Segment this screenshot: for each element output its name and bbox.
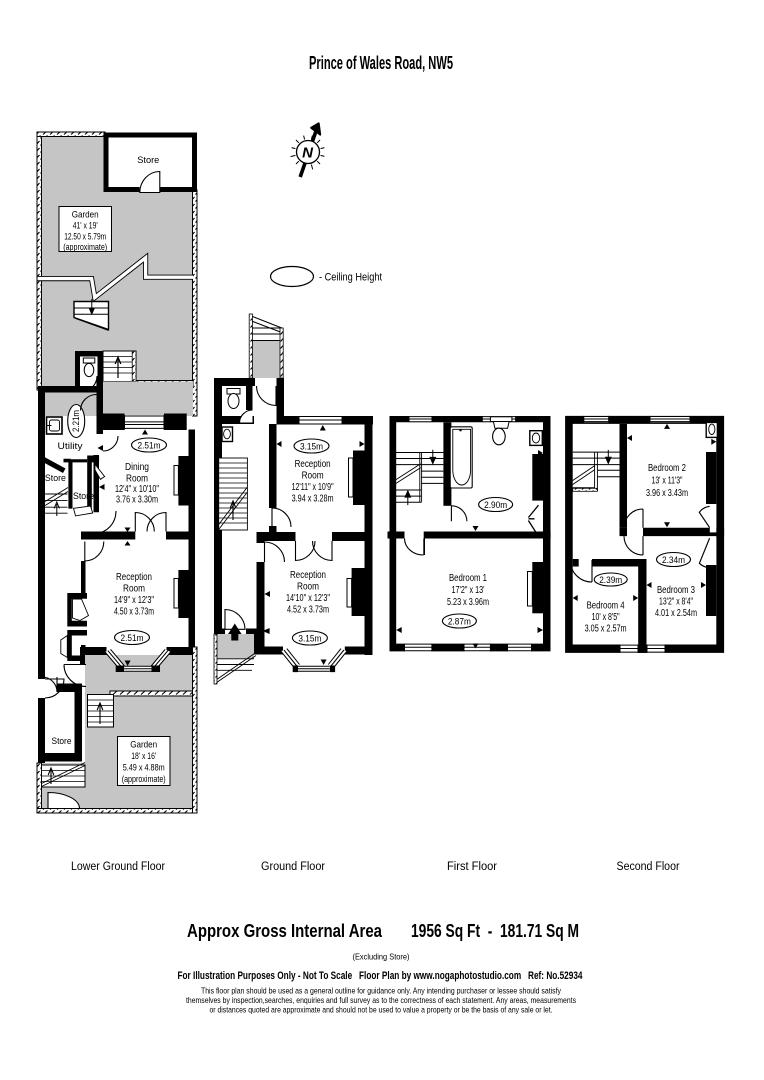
svg-text:or distances quoted are approx: or distances quoted are approximate and … [210,1005,553,1015]
svg-text:Room: Room [297,582,319,593]
svg-text:Utility: Utility [58,441,83,452]
svg-text:4.50 x 3.73m: 4.50 x 3.73m [114,607,154,618]
svg-text:Dining: Dining [125,462,149,473]
svg-text:2.39m: 2.39m [599,575,622,585]
svg-text:Approx Gross Internal Area: Approx Gross Internal Area [187,920,383,941]
svg-text:Ground Floor: Ground Floor [261,861,325,873]
svg-text:18' x 16': 18' x 16' [131,751,156,762]
svg-text:Lower Ground Floor: Lower Ground Floor [71,861,165,873]
svg-text:14'9" x 12'3": 14'9" x 12'3" [114,595,154,606]
svg-text:Garden: Garden [130,740,157,751]
svg-text:Room: Room [302,471,324,482]
svg-text:N: N [302,145,314,162]
svg-text:3.15m: 3.15m [300,441,323,451]
svg-text:Prince of Wales Road, NW5: Prince of Wales Road, NW5 [309,53,453,73]
svg-text:For Illustration Purposes Only: For Illustration Purposes Only - Not To … [178,970,584,982]
svg-text:Store: Store [73,491,94,502]
svg-text:2.21m: 2.21m [71,410,81,432]
svg-text:3.76 x 3.30m: 3.76 x 3.30m [116,495,158,506]
svg-text:5.49 x 4.88m: 5.49 x 4.88m [123,763,165,774]
svg-text:Second Floor: Second Floor [617,861,680,873]
svg-text:(approximate): (approximate) [63,242,107,253]
svg-text:2.34m: 2.34m [662,555,685,565]
svg-text:- Ceiling Height: - Ceiling Height [319,272,382,284]
svg-text:Bedroom 3: Bedroom 3 [657,585,695,596]
svg-text:2.51m: 2.51m [138,440,161,450]
svg-text:3.96 x 3.43m: 3.96 x 3.43m [646,488,688,499]
svg-text:Store: Store [52,736,72,747]
svg-text:(approximate): (approximate) [122,774,166,785]
svg-text:Garden: Garden [72,210,99,221]
svg-text:First Floor: First Floor [447,861,497,873]
svg-text:3.94 x 3.28m: 3.94 x 3.28m [292,494,334,505]
svg-text:Store: Store [45,473,66,484]
svg-text:Reception: Reception [295,459,331,470]
svg-text:13' x 11'3": 13' x 11'3" [652,476,683,487]
svg-text:Bedroom 4: Bedroom 4 [587,601,625,612]
svg-text:Room: Room [126,474,148,485]
svg-text:Bedroom 1: Bedroom 1 [449,573,487,584]
svg-text:Bedroom 2: Bedroom 2 [648,463,686,474]
svg-text:10' x 8'5": 10' x 8'5" [592,612,620,623]
svg-text:4.52 x 3.73m: 4.52 x 3.73m [287,605,329,616]
svg-text:41' x 19': 41' x 19' [73,221,98,232]
svg-text:12'11" x 10'9": 12'11" x 10'9" [292,482,334,493]
svg-text:12.50 x 5.79m: 12.50 x 5.79m [64,232,106,243]
svg-text:1956 Sq Ft - 181.71 Sq M: 1956 Sq Ft - 181.71 Sq M [411,920,579,941]
svg-text:17'2" x 13': 17'2" x 13' [452,585,485,596]
svg-text:This floor plan should be used: This floor plan should be used as a gene… [201,986,562,996]
svg-text:Reception: Reception [290,570,326,581]
svg-text:2.87m: 2.87m [448,616,471,626]
svg-text:(Excluding Store): (Excluding Store) [353,952,410,962]
svg-text:3.05 x 2.57m: 3.05 x 2.57m [585,624,627,635]
svg-text:Reception: Reception [116,572,152,583]
svg-text:Store: Store [137,155,159,166]
svg-text:12'4" x 10'10": 12'4" x 10'10" [115,484,159,495]
svg-text:4.01 x 2.54m: 4.01 x 2.54m [655,608,697,619]
svg-text:Room: Room [123,584,145,595]
svg-text:14'10" x 12'3": 14'10" x 12'3" [286,593,330,604]
svg-text:3.15m: 3.15m [298,633,321,643]
svg-text:themselves by inspection,searc: themselves by inspection,searches, enqui… [186,995,576,1005]
svg-text:5.23 x 3.96m: 5.23 x 3.96m [447,597,489,608]
svg-text:13'2" x 8'4": 13'2" x 8'4" [659,597,693,608]
svg-text:2.51m: 2.51m [121,633,144,643]
svg-text:2.90m: 2.90m [484,500,507,510]
